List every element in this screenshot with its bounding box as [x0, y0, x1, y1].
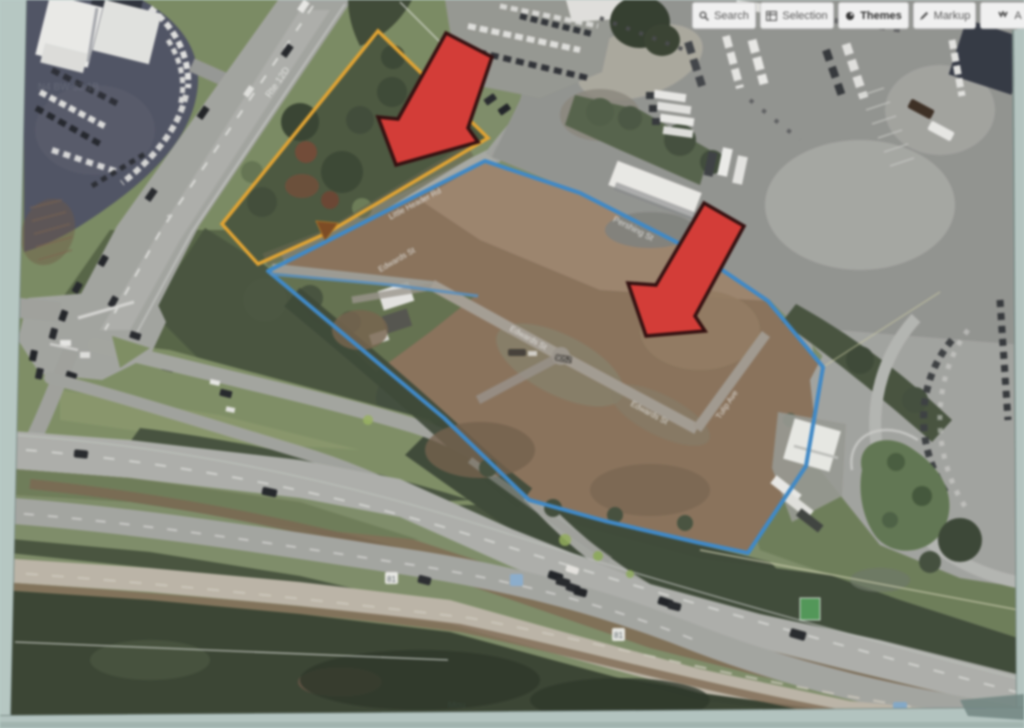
svg-text:81: 81 — [387, 575, 396, 584]
svg-text:81: 81 — [614, 631, 623, 640]
svg-text:N4 BW-52 1B: N4 BW-52 1B — [38, 82, 99, 93]
